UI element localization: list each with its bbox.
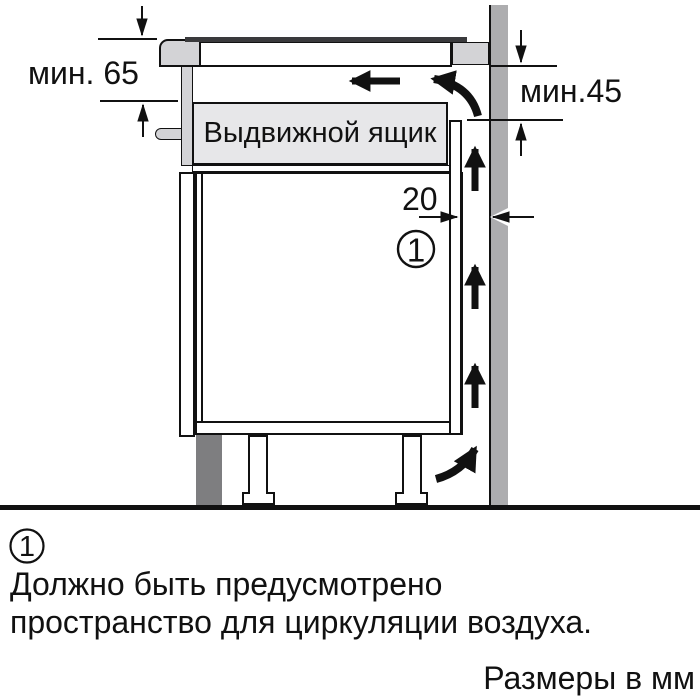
label-min65: мин. 65 [28,57,139,91]
back-panel [449,120,462,435]
front-door-panel [179,172,195,437]
worktop-end-cap-left [159,39,201,67]
drawer-box: Выдвижной ящик [192,102,448,165]
worktop-spacer-right [452,42,489,65]
label-min45: мин.45 [520,75,622,109]
installation-diagram: Выдвижной ящик [0,0,700,700]
cabinet-bottom-panel-line [195,421,463,423]
label-gap20: 20 [402,183,438,217]
footnote-line1: Должно быть предусмотрено [10,568,442,602]
plinth [196,435,222,505]
units-note: Размеры в мм [483,662,695,696]
drawer-label: Выдвижной ящик [204,117,437,150]
wall [489,5,508,506]
drawer-rail [192,165,450,172]
foot-stem-rear [402,435,422,494]
foot-stem-front [248,435,268,494]
drawer-handle [155,128,184,140]
cabinet-inner-side-line [201,172,203,421]
airflow-bottom-curve-arrow [436,449,475,479]
cooktop-body [195,41,452,67]
footnote-line2: пространство для циркуляции воздуха. [10,606,592,640]
callout-1-footnote: 1 [11,530,44,564]
cooktop-glass-top [185,37,467,42]
footnote-marker-number: 1 [19,531,35,563]
floor [0,505,700,510]
